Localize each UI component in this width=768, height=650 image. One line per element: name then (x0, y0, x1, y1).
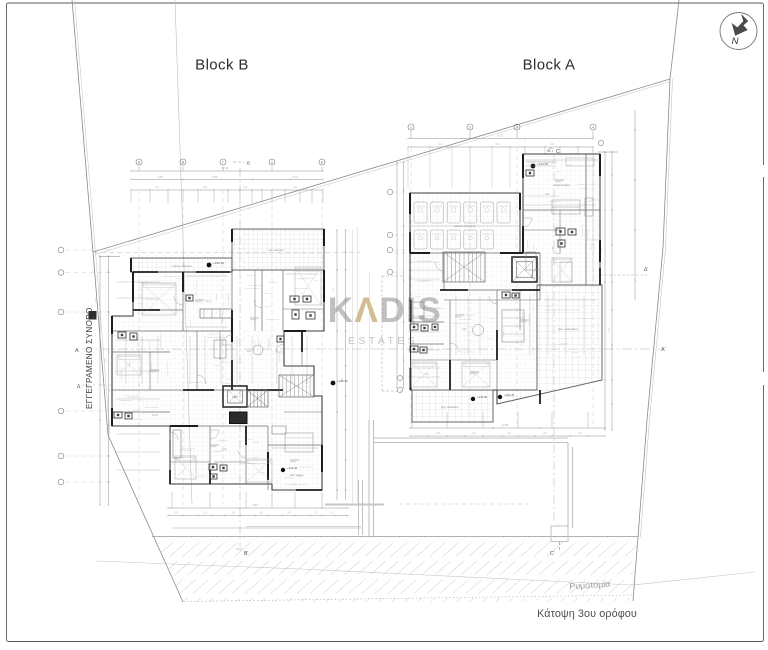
svg-text:C′: C′ (550, 551, 555, 557)
svg-text:γκαρσονιέρα: γκαρσονιέρα (554, 183, 570, 187)
svg-text:+132.40: +132.40 (287, 466, 298, 470)
svg-text:ESTATES: ESTATES (348, 335, 418, 347)
svg-text:βερ. ακάλυπτη: βερ. ακάλυπτη (441, 405, 459, 409)
svg-text:3: 3 (516, 126, 518, 130)
svg-text:βερ. καλυμμένη: βερ. καλυμμένη (558, 327, 578, 331)
svg-text:4.45: 4.45 (157, 175, 163, 179)
svg-text:Γ: Γ (222, 161, 224, 165)
svg-text:καθ.: καθ. (462, 328, 467, 331)
svg-text:υπν.1: υπν.1 (205, 300, 212, 303)
svg-text:καλ. κουζίνα: καλ. κουζίνα (268, 248, 284, 252)
svg-text:Κάτοψη 3ου ορόφου: Κάτοψη 3ου ορόφου (537, 608, 637, 620)
svg-text:Block A: Block A (523, 57, 576, 74)
svg-text:9.80: 9.80 (253, 504, 258, 507)
svg-text:+132.40: +132.40 (337, 379, 348, 383)
svg-text:+132.40: +132.40 (537, 162, 548, 166)
svg-text:1: 1 (410, 126, 412, 130)
svg-text:8.75: 8.75 (497, 134, 503, 138)
svg-text:A′: A′ (661, 347, 666, 353)
svg-text:5.95: 5.95 (212, 175, 218, 179)
svg-text:ΕΓΓΕΓΡΑΜΕΝΟ ΣΥΝΟΡΟ: ΕΓΓΕΓΡΑΜΕΝΟ ΣΥΝΟΡΟ (85, 307, 94, 409)
svg-text:B: B (247, 161, 250, 166)
svg-text:υπν.: υπν. (425, 373, 430, 376)
svg-text:4: 4 (592, 126, 594, 130)
svg-text:A: A (75, 348, 79, 354)
svg-text:2: 2 (469, 126, 471, 130)
svg-text:καθ.: καθ. (247, 350, 252, 353)
svg-text:10.95: 10.95 (502, 424, 509, 427)
svg-text:LIFT: LIFT (232, 395, 238, 399)
svg-text:υπν.2: υπν.2 (152, 414, 159, 417)
svg-text:B′: B′ (244, 551, 248, 557)
svg-text:Δ′: Δ′ (644, 267, 648, 273)
svg-text:σαλ.: σαλ. (545, 193, 550, 196)
svg-text:Block B: Block B (195, 57, 249, 74)
svg-text:καλυμ. βεράντα: καλυμ. βεράντα (172, 264, 192, 268)
svg-text:+132.40: +132.40 (213, 261, 224, 265)
svg-text:N: N (732, 36, 739, 47)
svg-text:3.30: 3.30 (95, 297, 98, 302)
svg-text:5.10: 5.10 (292, 175, 298, 179)
svg-text:κουζ.: κουζ. (222, 448, 228, 451)
svg-text:+130.40: +130.40 (477, 395, 488, 399)
svg-text:+130.40: +130.40 (504, 393, 515, 397)
